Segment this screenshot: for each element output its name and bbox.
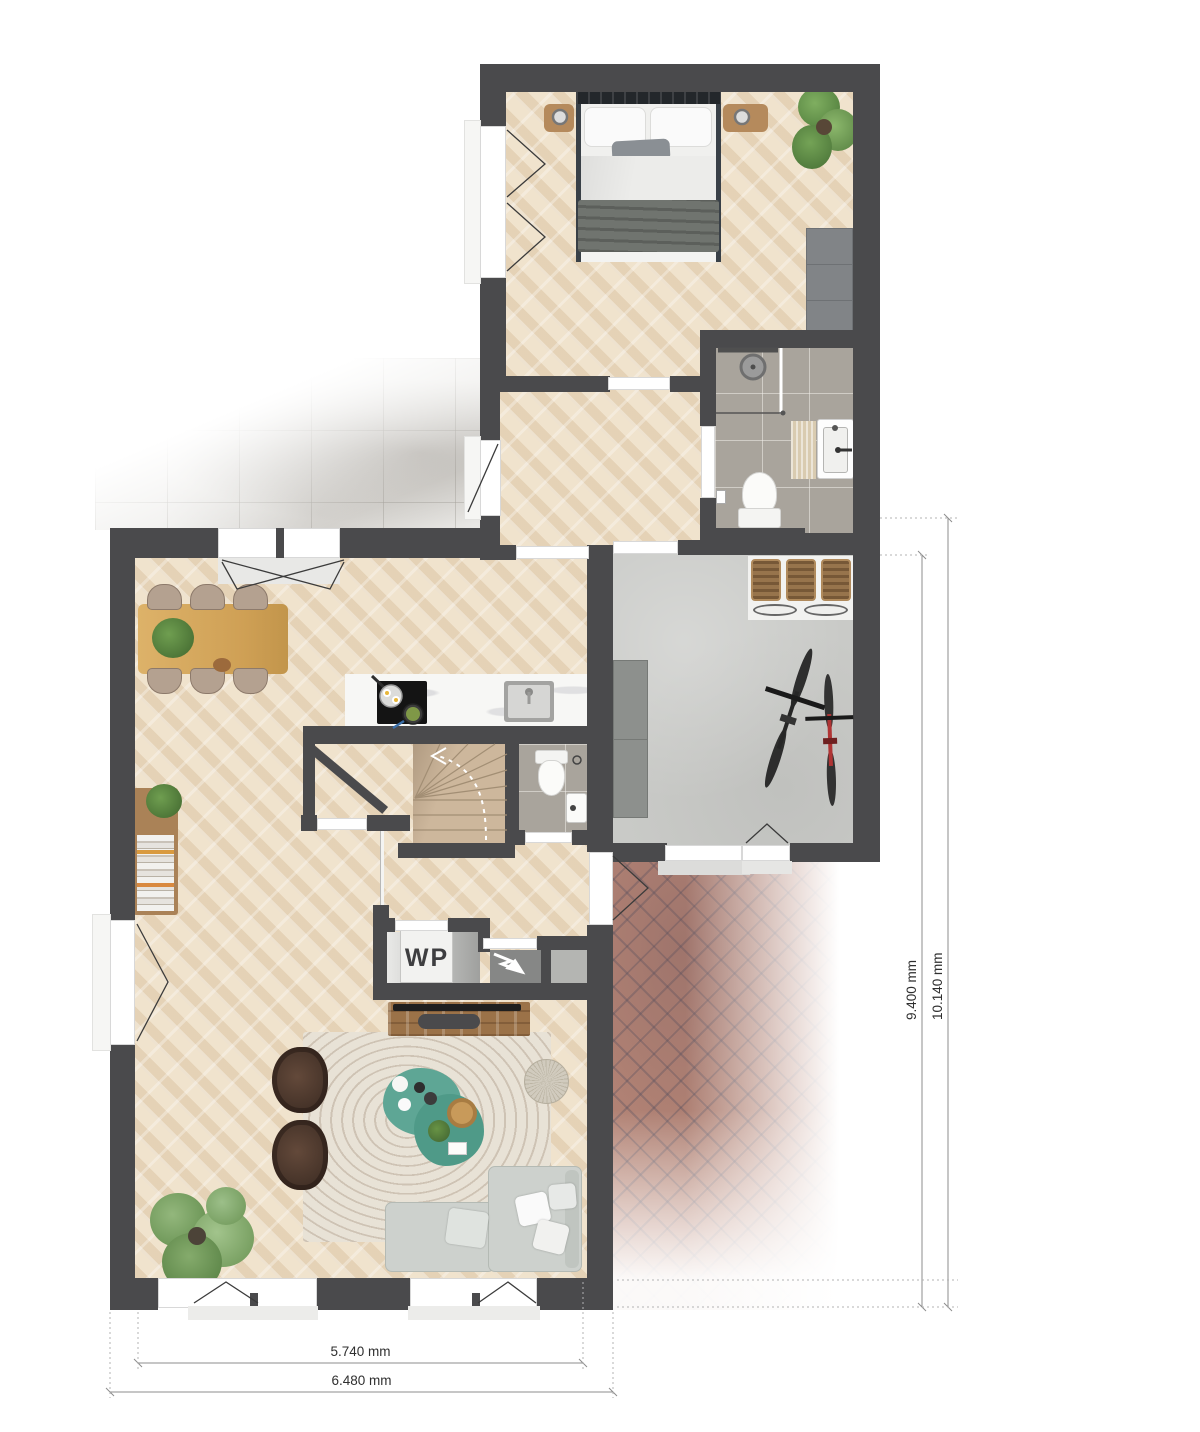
window-sill <box>408 1306 540 1320</box>
meter-closet-interior <box>490 950 541 983</box>
table-cup <box>392 1076 408 1092</box>
bath-mat <box>791 421 816 479</box>
living-bottom-window-1 <box>158 1278 317 1308</box>
dim-height-inner: 9.400 mm <box>904 960 919 1020</box>
shelf-books <box>137 835 174 911</box>
dim-height-outer: 10.140 mm <box>930 952 945 1020</box>
wall <box>303 726 613 744</box>
entry-glass-partition <box>380 830 384 906</box>
dining-chair <box>233 584 268 610</box>
table-item <box>414 1082 425 1093</box>
wall <box>587 545 613 852</box>
dining-chair <box>190 584 225 610</box>
storage-basket <box>751 559 781 601</box>
wc-sink <box>566 793 587 823</box>
dim-width-inner: 5.740 mm <box>138 1344 583 1359</box>
tv-screen <box>393 1004 521 1011</box>
wall <box>301 815 317 831</box>
wall <box>110 1045 135 1310</box>
sofa <box>385 1166 582 1272</box>
shelf-plant <box>146 784 182 818</box>
kitchen-sink <box>504 681 554 722</box>
window-sill <box>464 436 481 520</box>
table-book <box>448 1142 467 1155</box>
wall <box>373 983 613 1000</box>
bathroom-door <box>701 426 715 498</box>
storage-basket <box>786 559 816 601</box>
table-item <box>424 1092 437 1105</box>
hallway-living-door <box>516 546 589 559</box>
hallway-floor <box>498 388 702 548</box>
wall <box>480 392 500 440</box>
wall <box>572 830 589 845</box>
wc-toilet <box>534 750 570 798</box>
vanity-sink <box>817 419 854 479</box>
table-plant-small <box>428 1120 450 1142</box>
bed-headboard <box>576 90 721 104</box>
armchair <box>272 1047 328 1113</box>
window-sill <box>464 120 481 284</box>
wc-door <box>525 832 572 843</box>
washer-top <box>753 604 797 616</box>
straw-hat <box>447 1098 477 1128</box>
wall <box>541 950 551 983</box>
wall <box>700 330 716 426</box>
bedroom-door <box>608 377 670 390</box>
bedroom-window <box>480 126 506 278</box>
wall <box>110 1278 158 1310</box>
bedroom-plant-pot <box>816 119 832 135</box>
toilet <box>738 470 782 530</box>
wall <box>497 376 610 392</box>
toilet-paper-holder <box>716 490 726 504</box>
soundbar <box>418 1014 480 1029</box>
garage-door-step <box>742 861 792 874</box>
living-plant-pot <box>188 1227 206 1245</box>
wall <box>853 555 880 862</box>
wall <box>367 815 410 831</box>
window-sill <box>188 1306 318 1320</box>
wardrobe <box>806 228 853 335</box>
garage-window-sill <box>658 861 750 875</box>
dryer-top <box>804 604 848 616</box>
terrace-fade <box>95 358 500 530</box>
wall <box>317 1278 410 1310</box>
stair-floor <box>413 743 507 846</box>
wall <box>480 278 506 392</box>
cooktop <box>377 681 427 724</box>
pouf <box>524 1059 569 1104</box>
table-plant <box>152 618 194 658</box>
sofa-pillow <box>445 1207 490 1248</box>
sofa-pillow <box>548 1183 577 1210</box>
bed-sheet-end <box>581 252 716 262</box>
dim-width-outer: 6.480 mm <box>110 1373 613 1388</box>
wall <box>110 528 135 920</box>
wall <box>480 64 506 126</box>
table-cup <box>398 1098 411 1111</box>
heat-pump-label: WP <box>400 944 454 973</box>
bed-blanket <box>578 200 719 252</box>
wall <box>340 528 500 558</box>
wall <box>678 540 880 555</box>
wp-closet-door <box>395 920 448 931</box>
bed-duvet <box>581 156 716 202</box>
nightstand-right <box>723 104 768 132</box>
vanity-basin <box>823 427 848 473</box>
wall <box>700 330 880 348</box>
window-sill <box>92 914 111 1051</box>
hallway-garage-door <box>613 541 678 554</box>
front-door <box>589 852 613 925</box>
hallway-terrace-door <box>480 440 501 516</box>
nightstand-left <box>544 104 574 132</box>
wall <box>480 64 880 92</box>
wall <box>398 843 515 858</box>
stair-nook-door <box>317 818 367 830</box>
terrace-doormat <box>218 558 340 584</box>
door-mullion <box>276 528 284 558</box>
garage-cabinet <box>613 660 648 818</box>
armchair <box>272 1120 328 1190</box>
wall <box>303 726 315 818</box>
wall <box>515 830 525 845</box>
wall <box>613 843 667 862</box>
table-bowl <box>213 658 231 672</box>
meter-closet-door <box>483 938 537 949</box>
living-left-window <box>110 920 135 1045</box>
bed <box>576 90 721 262</box>
wall <box>537 936 613 950</box>
wall <box>853 64 880 564</box>
tv-cabinet <box>388 1002 530 1036</box>
bedroom-plant <box>790 85 860 177</box>
storage-basket <box>821 559 851 601</box>
garage-window <box>665 845 742 861</box>
floor-plan: WP 5.740 mm 6.480 mm 9.400 mm 10.140 mm <box>0 0 1200 1432</box>
dining-chair <box>147 584 182 610</box>
driveway-fade <box>613 860 903 1315</box>
garage-door <box>742 845 790 861</box>
